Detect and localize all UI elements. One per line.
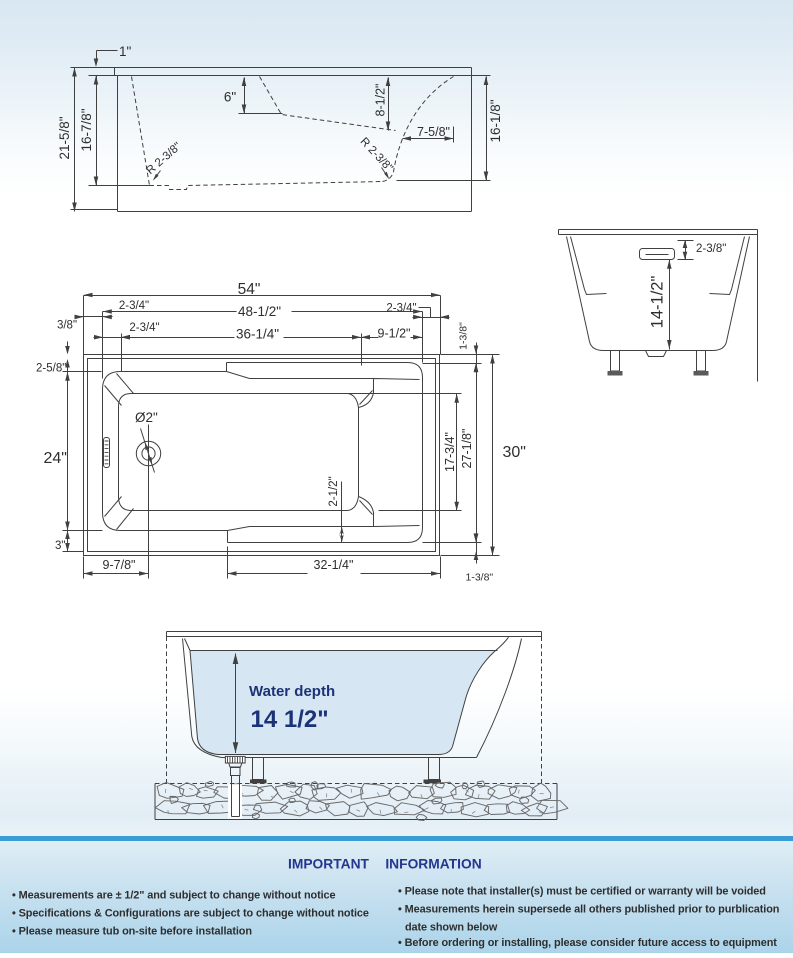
svg-text:2-1/2": 2-1/2" [328,476,340,506]
svg-text:1-3/8": 1-3/8" [466,572,494,584]
svg-text:21-5/8": 21-5/8" [57,116,72,159]
svg-text:• Measurements are ± 1/2" and: • Measurements are ± 1/2" and subject to… [12,890,335,902]
svg-text:1": 1" [119,44,132,59]
svg-text:1-3/8": 1-3/8" [458,322,470,350]
svg-text:date shown below: date shown below [405,922,498,934]
svg-text:IMPORTANT: IMPORTANT [288,857,370,872]
svg-text:3": 3" [55,540,65,552]
svg-text:INFORMATION: INFORMATION [385,857,481,872]
svg-text:54": 54" [238,281,261,298]
svg-text:3/8": 3/8" [57,320,77,332]
svg-text:• Please measure tub on-site b: • Please measure tub on-site before inst… [12,926,252,938]
svg-text:R 2-3/8": R 2-3/8" [144,140,183,176]
svg-text:2-5/8": 2-5/8" [36,363,66,375]
svg-text:R 2-3/8": R 2-3/8" [358,136,395,175]
svg-text:36-1/4": 36-1/4" [236,327,279,342]
svg-text:6": 6" [224,90,237,105]
svg-text:17-3/4": 17-3/4" [443,432,457,472]
svg-text:16-1/8": 16-1/8" [488,99,503,142]
svg-text:• Please note that installer(s: • Please note that installer(s) must be … [398,886,766,898]
svg-text:• Measurements herein supersed: • Measurements herein supersede all othe… [398,904,779,916]
svg-text:9-1/2": 9-1/2" [378,327,411,341]
svg-text:• Before ordering or installin: • Before ordering or installing, please … [398,937,777,949]
svg-text:• Specifications & Configurati: • Specifications & Configurations are su… [12,908,369,920]
svg-text:Ø2": Ø2" [135,410,158,425]
svg-text:2-3/4": 2-3/4" [386,303,416,315]
svg-text:8-1/2": 8-1/2" [374,84,388,117]
svg-text:2-3/8": 2-3/8" [696,243,726,255]
svg-text:27-1/8": 27-1/8" [460,429,474,469]
svg-text:32-1/4": 32-1/4" [314,558,354,572]
svg-text:7-5/8": 7-5/8" [417,125,450,139]
svg-text:14 1/2": 14 1/2" [251,706,329,733]
svg-text:2-3/4": 2-3/4" [129,322,159,334]
svg-text:24": 24" [44,450,67,467]
svg-text:9-7/8": 9-7/8" [103,558,136,572]
svg-text:16-7/8": 16-7/8" [79,108,94,151]
svg-text:48-1/2": 48-1/2" [238,304,281,319]
svg-text:14-1/2": 14-1/2" [649,276,667,329]
svg-text:Water depth: Water depth [249,683,335,700]
svg-text:2-3/4": 2-3/4" [119,300,149,312]
svg-text:30": 30" [503,444,526,461]
